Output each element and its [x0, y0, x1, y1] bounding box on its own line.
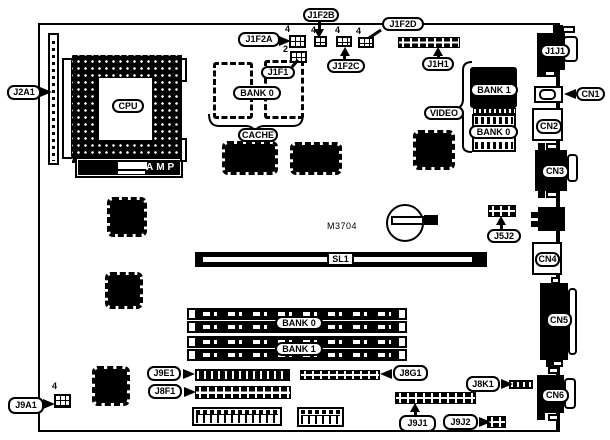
simm-clip: [187, 349, 197, 361]
j8g1-label: J8G1: [393, 365, 428, 381]
simm-bank0-label: BANK 0: [275, 316, 323, 330]
cn2-label: CN2: [536, 119, 562, 134]
cache-label: CACHE: [238, 128, 278, 142]
cpu-label: CPU: [112, 99, 144, 113]
mount-tab: [537, 413, 545, 420]
j1f2b-pointer: [314, 29, 324, 38]
j9j1-connector: [395, 392, 476, 404]
j1h1-label: J1H1: [422, 57, 454, 71]
j1f2a-label: J1F2A: [238, 32, 280, 47]
battery-clip-bar: [391, 216, 424, 225]
j8g1-pointer: [380, 369, 392, 379]
motherboard-diagram: J2A1 CPU AMP BANK 0 CACHE 4 4 4 4 2 J1F2…: [0, 0, 610, 440]
simm-clip: [187, 336, 197, 348]
amp-brand-label: AMP: [146, 161, 180, 174]
terminal-block: [192, 407, 282, 426]
terminal-block: [297, 407, 344, 427]
cache-tag-chip: [222, 141, 278, 175]
j1f2c-connector: [336, 36, 352, 47]
cn3-label: CN3: [541, 164, 569, 179]
j9a1-label: J9A1: [8, 397, 44, 414]
j1f1-label: J1F1: [261, 66, 295, 79]
mount-tab: [537, 70, 544, 77]
mount-bracket: [544, 70, 556, 77]
j1f2d-pincount: 4: [356, 27, 361, 36]
amp-window: [118, 162, 147, 169]
j1f2a-pincount: 4: [285, 25, 290, 34]
j1f1-connector: [290, 51, 307, 63]
stacked-port-connector: [538, 207, 565, 231]
cache-bank0-label: BANK 0: [233, 86, 281, 100]
j9j1-label: J9J1: [399, 415, 436, 432]
mount-bracket: [546, 191, 558, 198]
j1f2c-label: J1F2C: [327, 59, 365, 73]
battery-clip-end: [424, 215, 438, 225]
simm-clip: [397, 308, 407, 320]
cn5-label: CN5: [546, 312, 572, 328]
video-label: VIDEO: [424, 106, 464, 120]
simm-clip: [187, 308, 197, 320]
j1f1-pincount: 2: [283, 45, 288, 54]
simm-clip: [397, 336, 407, 348]
m3704-text: M3704: [327, 222, 357, 231]
j9e1-connector: [195, 369, 290, 381]
ic-chip: [413, 130, 455, 170]
cn1-pointer: [564, 89, 576, 99]
j1f2d-label: J1F2D: [382, 17, 424, 31]
simm-clip: [397, 321, 407, 333]
j8f1-pointer: [184, 387, 196, 397]
j1f2c-pincount: 4: [335, 26, 340, 35]
cn1-label: CN1: [576, 87, 605, 101]
j9j2-pointer: [479, 417, 491, 427]
ic-chip: [105, 272, 143, 309]
cpu-socket-tab-top: [180, 58, 187, 82]
j1h1-connector: [398, 37, 460, 48]
j9e1-label: J9E1: [147, 366, 181, 381]
j1f2b-label: J1F2B: [303, 8, 339, 22]
simm-bank1-label: BANK 1: [275, 342, 323, 356]
j2a1-label: J2A1: [7, 85, 41, 100]
j1f2a-connector: [289, 35, 306, 48]
mount-tab: [538, 143, 545, 150]
simm-clip: [187, 321, 197, 333]
j5j2-label: J5J2: [487, 229, 521, 243]
cache-tag-chip: [290, 142, 342, 175]
ic-chip: [92, 366, 130, 406]
j9a1-pincount: 4: [52, 382, 57, 391]
j9e1-pointer: [183, 369, 195, 379]
amp-window-line: [118, 171, 145, 174]
j1j1-label: J1J1: [540, 44, 570, 58]
j1j1-top-bracket: [562, 26, 575, 33]
j8g1-connector: [300, 370, 380, 380]
cn6-label: CN6: [541, 388, 569, 403]
sl1-label: SL1: [327, 252, 354, 266]
video-bank0-label: BANK 0: [469, 125, 518, 139]
j8k1-label: J8K1: [466, 376, 500, 392]
cn1-port-outline: [539, 89, 556, 100]
j8f1-connector: [195, 386, 291, 399]
j9a1-pointer: [43, 399, 55, 409]
j5j2-leader: [500, 221, 503, 229]
j8f1-label: J8F1: [148, 384, 182, 399]
j2a1-pointer: [40, 87, 52, 97]
j1f2d-connector: [358, 37, 374, 48]
simm-clip: [397, 349, 407, 361]
j9j2-label: J9J2: [443, 414, 478, 430]
mount-bracket: [552, 360, 563, 367]
ic-chip: [107, 197, 147, 237]
mount-bracket: [548, 367, 559, 374]
connector-nub: [531, 212, 538, 218]
connector-nub: [531, 221, 538, 227]
mount-bracket: [546, 143, 558, 150]
j2a1-connector: [48, 33, 59, 165]
mount-tab: [538, 191, 545, 198]
video-bank1-label: BANK 1: [470, 83, 518, 97]
mount-bracket: [548, 414, 559, 421]
cn4-label: CN4: [535, 252, 560, 267]
j9a1-connector: [54, 394, 71, 408]
j8k1-pointer: [501, 379, 513, 389]
cpu-socket-tab-bottom: [180, 138, 187, 162]
j1f2a-pointer: [279, 36, 291, 46]
